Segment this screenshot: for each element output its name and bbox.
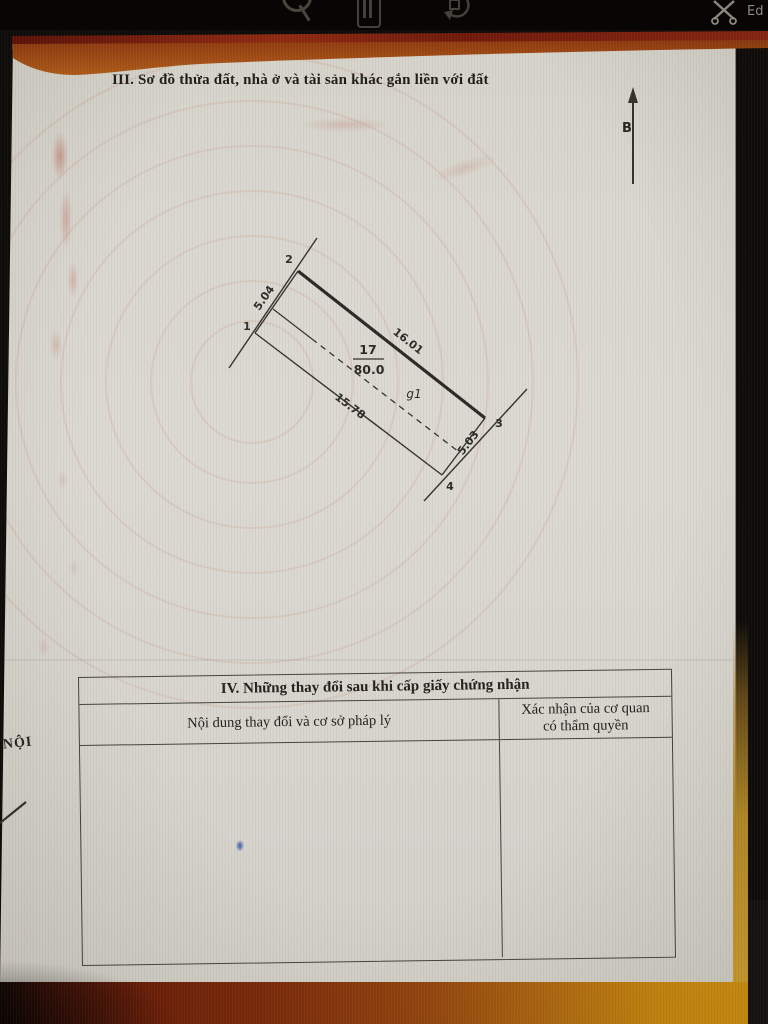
ink-smudge	[52, 132, 68, 180]
ink-smudge	[50, 330, 62, 360]
section3-title: III. Sơ đồ thửa đất, nhà ở và tài sản kh…	[112, 72, 489, 89]
rotate-icon[interactable]	[438, 0, 472, 24]
page-crease	[0, 659, 735, 661]
table-body-content-cell	[80, 740, 502, 963]
blue-ink-dot	[236, 841, 243, 851]
column-header-confirmation-line1: Xác nhận của cơ quan	[521, 700, 650, 719]
ink-smudge	[38, 638, 49, 656]
column-header-confirmation: Xác nhận của cơ quan có thẩm quyền	[498, 697, 672, 739]
book-cover-gold-edge	[733, 620, 748, 982]
ink-smudge	[60, 188, 72, 250]
ink-smudge	[300, 118, 390, 132]
side-margin-text: NỘI	[2, 735, 33, 754]
ink-smudge	[70, 560, 78, 576]
column-header-content: Nội dung thay đổi và cơ sở pháp lý	[79, 699, 499, 745]
table-body-confirmation-cell	[499, 738, 675, 957]
background-right-edge	[748, 900, 768, 1024]
section4-table: IV. Những thay đổi sau khi cấp giấy chứn…	[78, 669, 676, 966]
column-header-confirmation-line2: có thẩm quyền	[543, 717, 629, 735]
edit-label[interactable]: Ed	[747, 4, 768, 19]
edit-scissors-icon[interactable]	[710, 0, 740, 26]
ink-smudge	[68, 262, 78, 298]
shadow-corner	[0, 960, 180, 1024]
photo-viewer-screen: III. Sơ đồ thửa đất, nhà ở và tài sản kh…	[0, 0, 768, 1024]
ink-smudge	[58, 470, 67, 490]
guilloche-ring	[0, 55, 579, 709]
app-toolbar: Ed	[0, 0, 768, 30]
